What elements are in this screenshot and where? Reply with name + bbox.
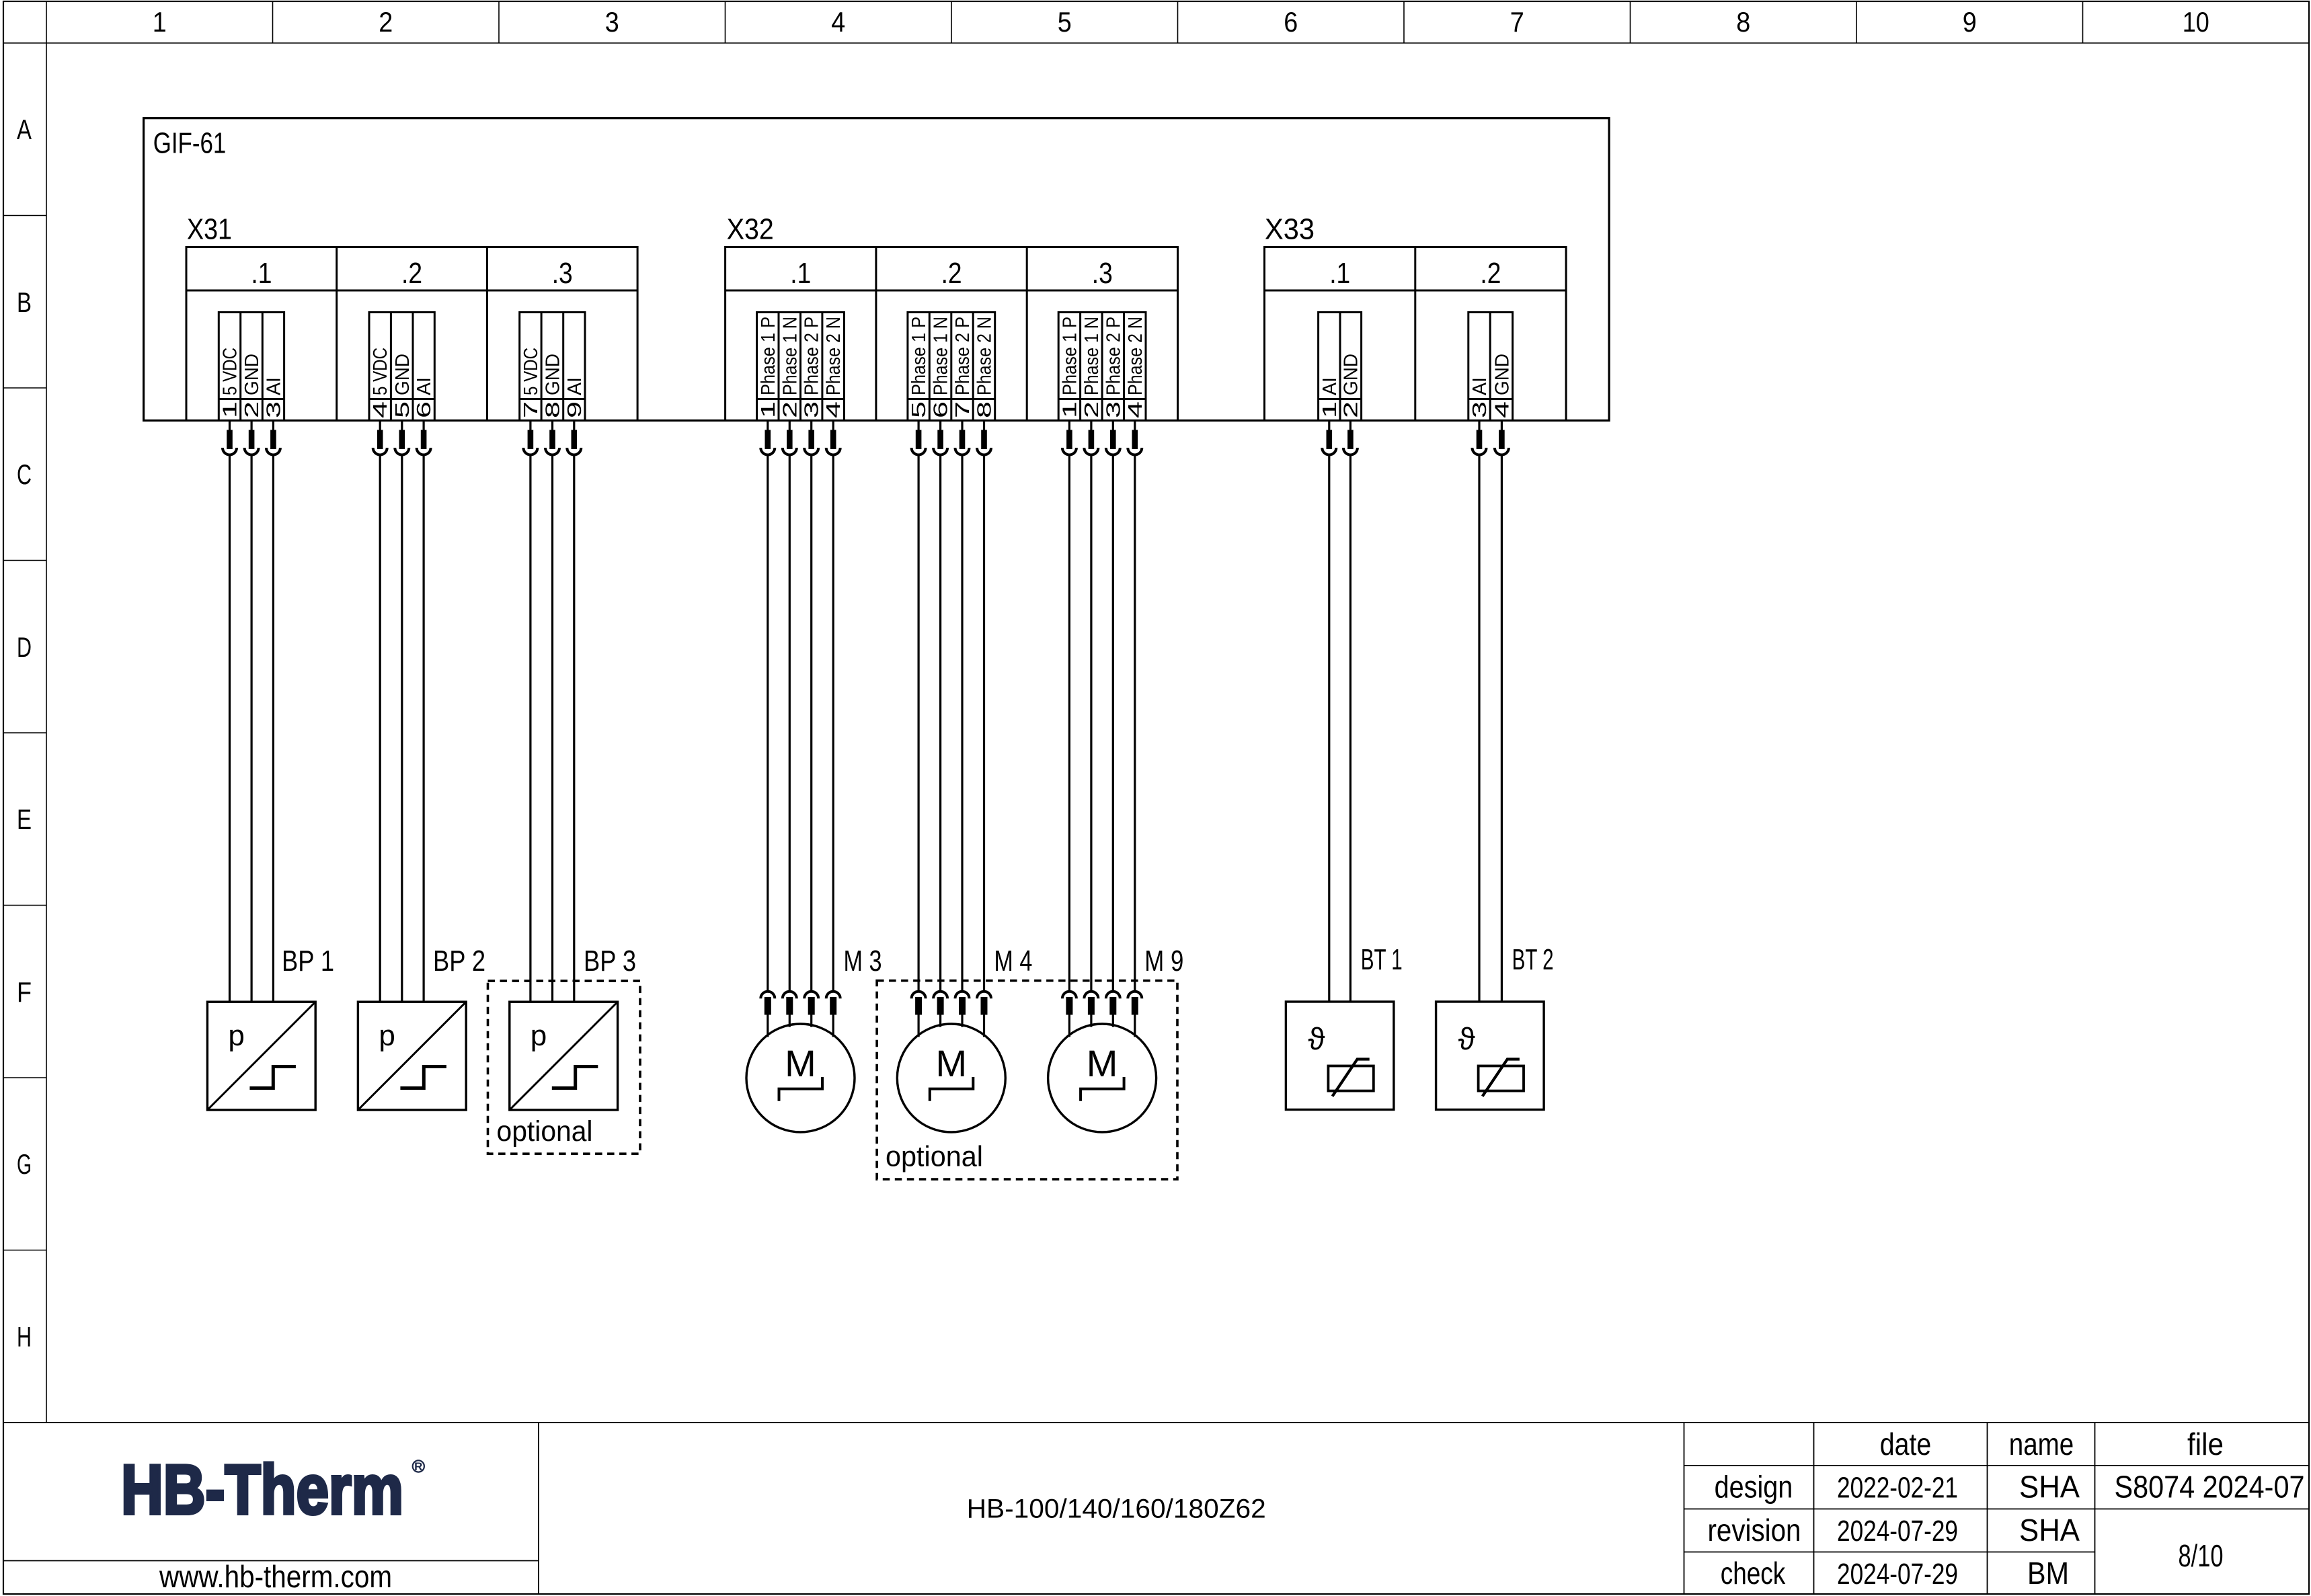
svg-text:R: R	[414, 1460, 422, 1473]
svg-text:check: check	[1721, 1556, 1786, 1591]
svg-text:M 4: M 4	[994, 945, 1032, 977]
svg-text:date: date	[1880, 1427, 1932, 1462]
svg-text:GND: GND	[392, 354, 414, 395]
svg-text:1: 1	[758, 401, 779, 418]
svg-text:7: 7	[1510, 6, 1524, 38]
svg-text:4: 4	[823, 401, 845, 418]
svg-text:F: F	[17, 976, 32, 1008]
svg-text:.2: .2	[941, 257, 962, 290]
svg-text:10: 10	[2183, 6, 2209, 38]
svg-text:1: 1	[1319, 401, 1341, 418]
svg-text:revision: revision	[1708, 1513, 1801, 1548]
svg-text:name: name	[2009, 1427, 2074, 1462]
svg-text:2022-02-21: 2022-02-21	[1837, 1472, 1958, 1505]
svg-text:GIF-61: GIF-61	[153, 126, 227, 159]
svg-text:3: 3	[801, 401, 823, 418]
svg-text:6: 6	[931, 401, 952, 418]
svg-text:Phase 1 P: Phase 1 P	[908, 317, 930, 395]
svg-text:Phase 1 P: Phase 1 P	[1059, 317, 1081, 395]
svg-text:X31: X31	[187, 213, 232, 246]
svg-text:GND: GND	[241, 354, 263, 395]
svg-text:file: file	[2187, 1427, 2224, 1462]
svg-text:H: H	[17, 1321, 32, 1353]
svg-text:M: M	[935, 1042, 967, 1084]
svg-text:6: 6	[414, 401, 435, 418]
svg-text:1: 1	[220, 401, 241, 418]
svg-text:GND: GND	[1340, 354, 1362, 395]
svg-text:M 3: M 3	[844, 945, 882, 977]
svg-text:2: 2	[1340, 401, 1362, 418]
svg-text:Phase 2 N: Phase 2 N	[974, 317, 996, 395]
svg-text:AI: AI	[1469, 377, 1491, 395]
svg-text:SHA: SHA	[2019, 1470, 2080, 1505]
svg-text:www.hb-therm.com: www.hb-therm.com	[159, 1559, 392, 1594]
svg-text:BM: BM	[2027, 1556, 2069, 1591]
svg-text:7: 7	[952, 401, 974, 418]
svg-text:SHA: SHA	[2019, 1513, 2080, 1548]
svg-text:design: design	[1715, 1470, 1793, 1505]
svg-text:4: 4	[831, 6, 845, 38]
svg-text:p: p	[531, 1019, 547, 1052]
svg-text:2: 2	[779, 401, 801, 418]
svg-text:.1: .1	[251, 257, 272, 290]
svg-text:BP 3: BP 3	[584, 945, 636, 977]
svg-text:3: 3	[1469, 401, 1491, 418]
svg-text:6: 6	[1284, 6, 1298, 38]
svg-text:.3: .3	[1092, 257, 1113, 290]
svg-text:p: p	[379, 1019, 395, 1052]
svg-text:2024-07-29: 2024-07-29	[1837, 1515, 1958, 1548]
svg-text:BP 2: BP 2	[433, 945, 485, 977]
svg-text:S8074 2024-07: S8074 2024-07	[2115, 1470, 2305, 1505]
svg-text:optional: optional	[497, 1115, 593, 1148]
svg-text:BP 1: BP 1	[282, 945, 334, 977]
svg-text:8/10: 8/10	[2179, 1538, 2224, 1573]
svg-text:AI: AI	[1319, 377, 1341, 395]
svg-text:9: 9	[564, 401, 586, 418]
svg-text:B: B	[17, 286, 32, 318]
svg-text:8: 8	[1736, 6, 1750, 38]
svg-text:Phase 1 N: Phase 1 N	[1081, 317, 1103, 395]
svg-text:X32: X32	[727, 213, 774, 246]
svg-text:2024-07-29: 2024-07-29	[1837, 1558, 1958, 1591]
svg-text:E: E	[17, 803, 32, 835]
svg-text:9: 9	[1963, 6, 1977, 38]
svg-text:M 9: M 9	[1144, 945, 1183, 977]
svg-text:1: 1	[1059, 401, 1081, 418]
svg-text:BT 1: BT 1	[1361, 943, 1403, 976]
svg-text:M: M	[785, 1042, 816, 1084]
svg-text:5: 5	[392, 401, 414, 418]
svg-text:5: 5	[908, 401, 930, 418]
svg-text:.2: .2	[1480, 257, 1501, 290]
svg-text:ϑ: ϑ	[1458, 1021, 1475, 1056]
svg-text:2: 2	[1081, 401, 1103, 418]
svg-text:GND: GND	[543, 354, 564, 395]
svg-text:3: 3	[605, 6, 619, 38]
svg-text:Phase 2 N: Phase 2 N	[823, 317, 845, 395]
svg-text:Phase 2 P: Phase 2 P	[952, 317, 974, 395]
svg-text:.1: .1	[1329, 257, 1350, 290]
svg-text:4: 4	[370, 401, 391, 418]
svg-text:.1: .1	[790, 257, 811, 290]
svg-text:Phase 1 N: Phase 1 N	[779, 317, 801, 395]
svg-text:Phase 1 P: Phase 1 P	[758, 317, 779, 395]
svg-text:AI: AI	[414, 377, 435, 395]
svg-text:HB-Therm: HB-Therm	[121, 1451, 403, 1529]
svg-text:G: G	[17, 1148, 32, 1180]
svg-text:A: A	[17, 114, 32, 145]
svg-text:HB-100/140/160/180Z62: HB-100/140/160/180Z62	[967, 1494, 1266, 1523]
svg-text:AI: AI	[564, 377, 586, 395]
svg-text:AI: AI	[263, 377, 284, 395]
svg-text:.3: .3	[552, 257, 573, 290]
svg-text:BT 2: BT 2	[1512, 943, 1554, 976]
svg-text:C: C	[17, 458, 32, 490]
svg-text:2: 2	[379, 6, 393, 38]
svg-text:M: M	[1087, 1042, 1118, 1084]
svg-text:5 VDC: 5 VDC	[520, 348, 542, 395]
svg-text:8: 8	[974, 401, 996, 418]
svg-text:optional: optional	[886, 1141, 983, 1173]
svg-text:7: 7	[520, 401, 542, 418]
svg-text:4: 4	[1491, 401, 1513, 418]
svg-text:3: 3	[1103, 401, 1124, 418]
svg-text:5 VDC: 5 VDC	[220, 348, 241, 395]
svg-text:3: 3	[263, 401, 284, 418]
svg-text:Phase 2 P: Phase 2 P	[1103, 317, 1124, 395]
svg-text:D: D	[17, 631, 32, 663]
svg-text:ϑ: ϑ	[1308, 1021, 1325, 1056]
svg-text:X33: X33	[1265, 213, 1315, 246]
svg-text:8: 8	[543, 401, 564, 418]
svg-text:Phase 2 P: Phase 2 P	[801, 317, 823, 395]
svg-text:p: p	[228, 1019, 244, 1052]
svg-text:Phase 1 N: Phase 1 N	[931, 317, 952, 395]
svg-text:GND: GND	[1491, 354, 1513, 395]
svg-text:5 VDC: 5 VDC	[370, 348, 391, 395]
svg-text:5: 5	[1058, 6, 1072, 38]
svg-text:Phase 2 N: Phase 2 N	[1125, 317, 1146, 395]
svg-text:4: 4	[1125, 401, 1146, 418]
svg-text:.2: .2	[401, 257, 422, 290]
svg-text:2: 2	[241, 401, 263, 418]
svg-text:1: 1	[153, 6, 167, 38]
